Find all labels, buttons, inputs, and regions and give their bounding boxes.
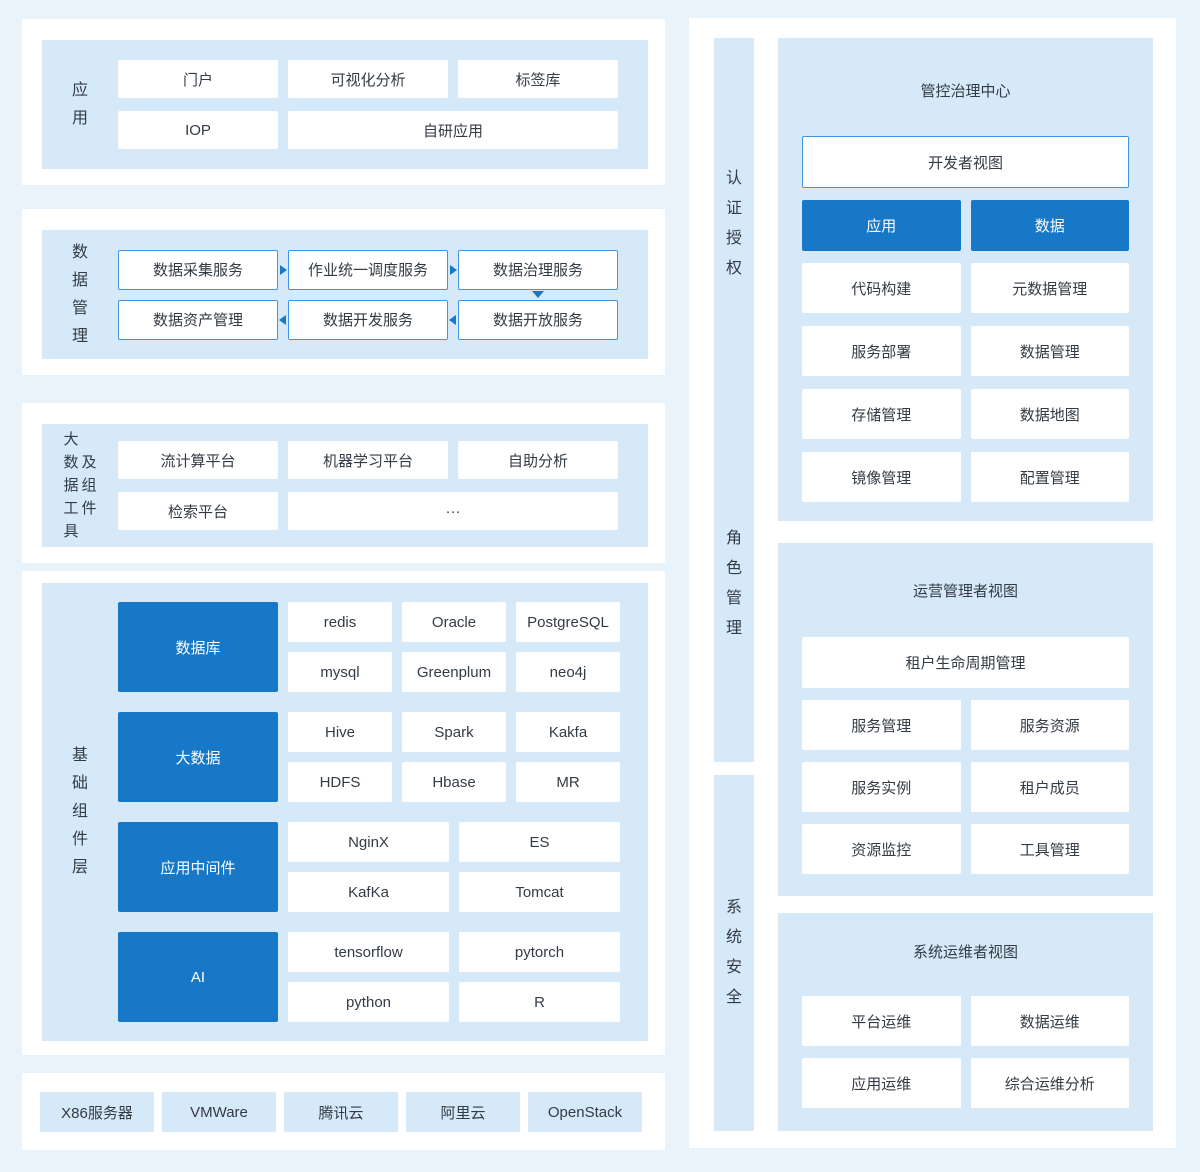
tool-node: 机器学习平台 xyxy=(288,441,448,479)
section-governance: 认证授权 角色管理 系统安全 管控治理中心 开发者视图 应用 数据 代码构建 元… xyxy=(689,18,1176,1148)
application-row-1: 门户 可视化分析 标签库 xyxy=(118,60,618,98)
tech-node: KafKa xyxy=(288,872,449,912)
flow-node: 数据开放服务 xyxy=(458,300,618,340)
infra-node: 阿里云 xyxy=(406,1092,520,1132)
governance-tabs: 应用 数据 xyxy=(802,200,1129,251)
tech-node: Kakfa xyxy=(516,712,620,752)
tech-node: redis xyxy=(288,602,392,642)
bigdata-tools-label-column: 大数据工具 及组件 xyxy=(42,424,118,547)
tech-node: Hive xyxy=(288,712,392,752)
tech-node: NginX xyxy=(288,822,449,862)
application-row-2: IOP 自研应用 xyxy=(118,111,618,149)
application-label-column: 应用 xyxy=(42,40,118,169)
bigdata-tools-rows: 流计算平台 机器学习平台 自助分析 检索平台 ··· xyxy=(118,424,648,547)
role-bar: 角色管理 xyxy=(714,405,754,762)
operations-view-panel: 运营管理者视图 租户生命周期管理 服务管理 服务资源 服务实例 租户成员 资源监… xyxy=(778,543,1153,896)
tech-node: tensorflow xyxy=(288,932,449,972)
group-database: 数据库 redis Oracle PostgreSQL mysql Greenp… xyxy=(118,602,620,692)
base-layer-panel: 基础组件层 数据库 redis Oracle PostgreSQL mysql … xyxy=(42,583,648,1041)
section-application: 应用 门户 可视化分析 标签库 IOP 自研应用 xyxy=(22,19,665,185)
app-node: 可视化分析 xyxy=(288,60,448,98)
tool-node-ellipsis: ··· xyxy=(288,492,618,530)
tech-node: Greenplum xyxy=(402,652,506,692)
infra-node: VMWare xyxy=(162,1092,276,1132)
tab-node: 数据 xyxy=(971,200,1130,251)
middleware-tech-grid: NginX ES KafKa Tomcat xyxy=(288,822,620,912)
cell-node: 服务管理 xyxy=(802,700,961,750)
infrastructure-row: X86服务器 VMWare 腾讯云 阿里云 OpenStack xyxy=(40,1092,642,1132)
role-bar-label: 角色管理 xyxy=(726,524,742,644)
sysops-view-panel: 系统运维者视图 平台运维 数据运维 应用运维 综合运维分析 xyxy=(778,913,1153,1131)
cell-node: 平台运维 xyxy=(802,996,961,1046)
arrow-left-icon xyxy=(449,315,456,325)
cell-node: 资源监控 xyxy=(802,824,961,874)
group-middleware: 应用中间件 NginX ES KafKa Tomcat xyxy=(118,822,620,912)
section-infrastructure: X86服务器 VMWare 腾讯云 阿里云 OpenStack xyxy=(22,1073,665,1150)
tech-node: Oracle xyxy=(402,602,506,642)
app-node: 标签库 xyxy=(458,60,618,98)
security-bar-label: 系统安全 xyxy=(726,893,742,1013)
flow-row-2: 数据资产管理 数据开发服务 数据开放服务 xyxy=(118,300,618,340)
tech-node: python xyxy=(288,982,449,1022)
tech-node: pytorch xyxy=(459,932,620,972)
arrow-down-icon xyxy=(532,291,544,298)
base-layer-label-column: 基础组件层 xyxy=(42,583,118,1041)
flow-node: 数据资产管理 xyxy=(118,300,278,340)
cell-node: 数据地图 xyxy=(971,389,1130,439)
cell-node: 租户生命周期管理 xyxy=(802,637,1129,688)
cell-node: 数据管理 xyxy=(971,326,1130,376)
tech-node: MR xyxy=(516,762,620,802)
base-layer-groups: 数据库 redis Oracle PostgreSQL mysql Greenp… xyxy=(118,583,648,1041)
cell-node: 应用运维 xyxy=(802,1058,961,1108)
cell-node: 服务资源 xyxy=(971,700,1130,750)
data-management-label: 数据管理 xyxy=(72,239,88,351)
app-node: 自研应用 xyxy=(288,111,618,149)
arrow-right-icon xyxy=(280,265,287,275)
tab-node: 应用 xyxy=(802,200,961,251)
bigdata-tools-panel: 大数据工具 及组件 流计算平台 机器学习平台 自助分析 检索平台 ··· xyxy=(42,424,648,547)
tool-node: 检索平台 xyxy=(118,492,278,530)
bigdata-tools-label-col1: 大数据工具 xyxy=(64,428,79,543)
bigdata-tools-row-2: 检索平台 ··· xyxy=(118,492,618,530)
data-management-label-column: 数据管理 xyxy=(42,230,118,359)
section-data-management: 数据管理 数据采集服务 作业统一调度服务 数据治理服务 数据资产管理 数据开发服… xyxy=(22,209,665,375)
category-node: 应用中间件 xyxy=(118,822,278,912)
tech-node: Tomcat xyxy=(459,872,620,912)
flow-node: 作业统一调度服务 xyxy=(288,250,448,290)
cell-node: 元数据管理 xyxy=(971,263,1130,313)
governance-center-panel: 管控治理中心 开发者视图 应用 数据 代码构建 元数据管理 服务部署 数据管理 … xyxy=(778,38,1153,521)
category-node: AI xyxy=(118,932,278,1022)
group-ai: AI tensorflow pytorch python R xyxy=(118,932,620,1022)
cell-node: 存储管理 xyxy=(802,389,961,439)
cell-node: 综合运维分析 xyxy=(971,1058,1130,1108)
cell-node: 服务部署 xyxy=(802,326,961,376)
operations-cells: 租户生命周期管理 服务管理 服务资源 服务实例 租户成员 资源监控 工具管理 xyxy=(802,637,1129,874)
security-bar: 系统安全 xyxy=(714,775,754,1131)
infra-node: X86服务器 xyxy=(40,1092,154,1132)
cell-node: 租户成员 xyxy=(971,762,1130,812)
bigdata-tools-row-1: 流计算平台 机器学习平台 自助分析 xyxy=(118,441,618,479)
auth-bar-label: 认证授权 xyxy=(726,164,742,284)
data-management-panel: 数据管理 数据采集服务 作业统一调度服务 数据治理服务 数据资产管理 数据开发服… xyxy=(42,230,648,359)
panel-title: 运营管理者视图 xyxy=(802,582,1129,602)
developer-view-node: 开发者视图 xyxy=(802,136,1129,188)
infra-node: OpenStack xyxy=(528,1092,642,1132)
flow-node: 数据开发服务 xyxy=(288,300,448,340)
panel-title: 管控治理中心 xyxy=(802,82,1129,102)
data-management-flow: 数据采集服务 作业统一调度服务 数据治理服务 数据资产管理 数据开发服务 数据开… xyxy=(118,230,648,359)
section-base-layer: 基础组件层 数据库 redis Oracle PostgreSQL mysql … xyxy=(22,571,665,1055)
base-layer-label: 基础组件层 xyxy=(72,742,88,882)
sysops-cells: 平台运维 数据运维 应用运维 综合运维分析 xyxy=(802,996,1129,1108)
tech-node: Hbase xyxy=(402,762,506,802)
app-node: IOP xyxy=(118,111,278,149)
bigdata-tools-label-col2: 及组件 xyxy=(82,451,97,520)
auth-bar: 认证授权 xyxy=(714,38,754,410)
tech-node: R xyxy=(459,982,620,1022)
flow-node: 数据治理服务 xyxy=(458,250,618,290)
flow-row-1: 数据采集服务 作业统一调度服务 数据治理服务 xyxy=(118,250,618,290)
section-bigdata-tools: 大数据工具 及组件 流计算平台 机器学习平台 自助分析 检索平台 ··· xyxy=(22,403,665,563)
application-label: 应用 xyxy=(72,77,88,133)
panel-title: 系统运维者视图 xyxy=(802,943,1129,963)
tech-node: Spark xyxy=(402,712,506,752)
tech-node: neo4j xyxy=(516,652,620,692)
cell-node: 服务实例 xyxy=(802,762,961,812)
ai-tech-grid: tensorflow pytorch python R xyxy=(288,932,620,1022)
cell-node: 代码构建 xyxy=(802,263,961,313)
cell-node: 数据运维 xyxy=(971,996,1130,1046)
tool-node: 自助分析 xyxy=(458,441,618,479)
arrow-right-icon xyxy=(450,265,457,275)
governance-cells: 代码构建 元数据管理 服务部署 数据管理 存储管理 数据地图 镜像管理 配置管理 xyxy=(802,263,1129,502)
application-rows: 门户 可视化分析 标签库 IOP 自研应用 xyxy=(118,40,648,169)
category-node: 大数据 xyxy=(118,712,278,802)
tech-node: mysql xyxy=(288,652,392,692)
bigdata-tech-grid: Hive Spark Kakfa HDFS Hbase MR xyxy=(288,712,620,802)
application-panel: 应用 门户 可视化分析 标签库 IOP 自研应用 xyxy=(42,40,648,169)
cell-node: 配置管理 xyxy=(971,452,1130,502)
arrow-left-icon xyxy=(279,315,286,325)
tech-node: HDFS xyxy=(288,762,392,802)
flow-node: 数据采集服务 xyxy=(118,250,278,290)
tech-node: PostgreSQL xyxy=(516,602,620,642)
app-node: 门户 xyxy=(118,60,278,98)
tool-node: 流计算平台 xyxy=(118,441,278,479)
cell-node: 工具管理 xyxy=(971,824,1130,874)
group-bigdata: 大数据 Hive Spark Kakfa HDFS Hbase MR xyxy=(118,712,620,802)
tech-node: ES xyxy=(459,822,620,862)
category-node: 数据库 xyxy=(118,602,278,692)
cell-node: 镜像管理 xyxy=(802,452,961,502)
infra-node: 腾讯云 xyxy=(284,1092,398,1132)
database-tech-grid: redis Oracle PostgreSQL mysql Greenplum … xyxy=(288,602,620,692)
